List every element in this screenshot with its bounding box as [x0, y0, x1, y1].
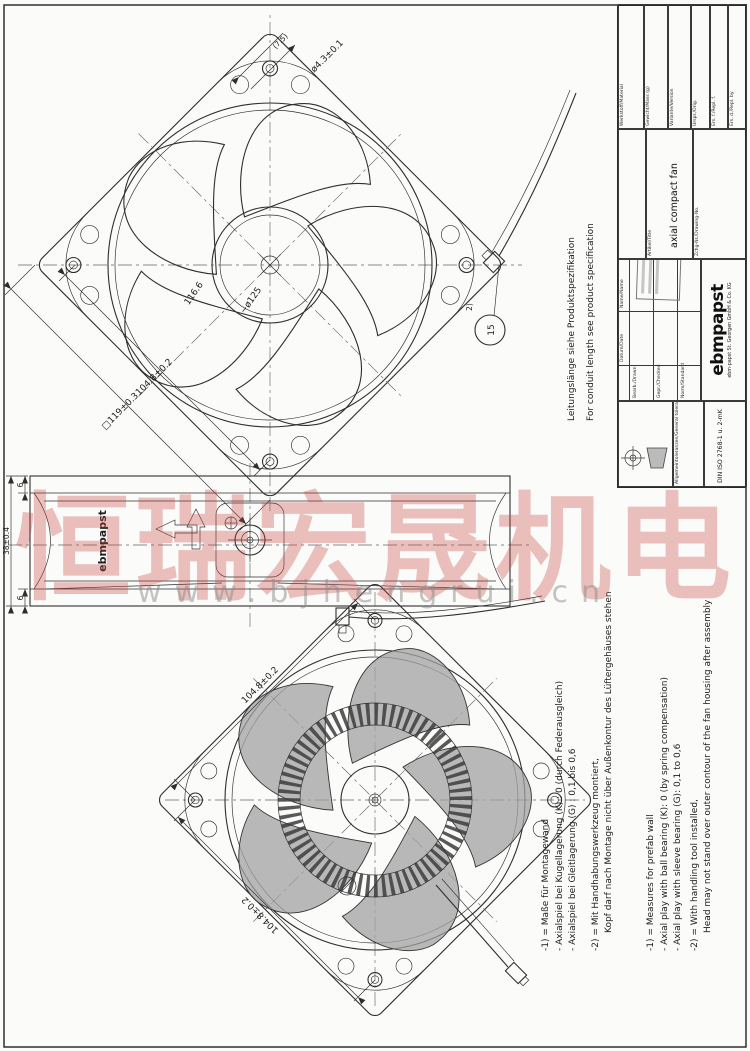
orig-label: Urspr./Orig.	[693, 100, 698, 126]
material-cell: Werkstoff/Material	[618, 4, 644, 129]
notes-english: -1) = Measures for prefab wall - Axial p…	[645, 600, 716, 951]
note-de-4: -2) = Mit Handhabungswerkzeug montiert,	[590, 591, 604, 951]
approval-stamp	[636, 259, 682, 301]
note-de-5: Kopf darf nach Montage nicht über Außenk…	[603, 591, 617, 951]
svg-text:□119±0.3: □119±0.3	[100, 391, 141, 432]
front-view-outlet: □119±0.3 104.8±0.2 (7.5) ø4.3±0.1 116.6	[5, 2, 576, 530]
tolerance-label: Allgemeintoleranzen/General tolerances	[675, 401, 680, 484]
note-en-1: -1) = Measures for prefab wall	[645, 600, 659, 951]
dim-hole-pitch: 104.8±0.2	[59, 265, 270, 476]
svg-text:6: 6	[16, 595, 25, 600]
svg-text:38±0.4: 38±0.4	[2, 527, 11, 555]
dim-flange-right: 6	[16, 476, 28, 493]
note-en-3: - Axial play with sleeve bearing (G): 0,…	[672, 600, 686, 951]
balloon-15: 15 2)	[465, 265, 505, 345]
mass-label: Gewicht/Mass (g)	[646, 86, 651, 126]
replaced-for-label: Ers. f./Repl. f.	[712, 96, 717, 126]
ebmpapst-logo: ebmpapst	[708, 260, 728, 400]
tolerance-label-cell: Allgemeintoleranzen/General tolerances	[673, 401, 704, 487]
note-de-3: - Axialspiel bei Gleitlagerung (G) : 0,1…	[567, 591, 581, 951]
dim-depth: 38±0.4	[2, 476, 28, 606]
article-title: axial compact fan	[669, 163, 680, 248]
note-en-4: -2) = With handling tool installed,	[689, 600, 703, 951]
lead-wire-side-view	[336, 596, 545, 633]
tolerance-standard: DIN ISO 2768-1 u. 2-mK	[717, 405, 725, 483]
article-label: Artikel/Title	[648, 230, 653, 256]
conduit-note-de: Leitungslänge siehe Produktspezifikation	[563, 223, 582, 421]
logo-cell: ebmpapst ebm-papst St. Georgen GmbH & Co…	[701, 259, 747, 401]
dim-flange-left: 6	[16, 589, 28, 606]
orig-cell: Urspr./Orig.	[691, 4, 710, 129]
approval-grid: Datum/Date Name/Name Bearb./Drawn Gepr./…	[618, 259, 701, 401]
replaced-for-cell: Ers. f./Repl. f.	[710, 4, 728, 129]
name-header: Name/Name	[620, 279, 625, 308]
replaced-by-cell: Ers. d./Repl. by	[728, 4, 747, 129]
date-header: Datum/Date	[620, 334, 625, 362]
replaced-by-label: Ers. d./Repl. by	[730, 91, 735, 126]
note-en-5: Head may not stand over outer contour of…	[702, 600, 716, 951]
standard-label: Norm/Standard	[681, 363, 686, 398]
company-name: ebm-papst St. Georgen GmbH & Co. KG	[728, 260, 733, 400]
material-label: Werkstoff/Material	[620, 84, 625, 126]
drawn-label: Bearb./Drawn	[633, 366, 638, 398]
projection-method-icon	[621, 446, 667, 470]
dim-ring: 116.6	[183, 280, 206, 307]
conduit-length-note: Leitungslänge siehe Produktspezifikation…	[563, 223, 601, 421]
note-de-2: - Axialspiel bei Kugellagerung (K) : 0 (…	[554, 591, 568, 951]
projection-symbol-cell	[618, 401, 673, 487]
side-view: ebmpapst 38±0.4 6	[2, 459, 545, 633]
fan-blades-shaded	[133, 579, 594, 1040]
spare-cell	[618, 129, 646, 259]
mass-cell: Gewicht/Mass (g)	[644, 4, 668, 129]
variant-label: Variante/Version	[670, 88, 675, 126]
conduit-note-en: For conduit length see product specifica…	[582, 223, 601, 421]
drawing-no-label: Zchg-Nr./Drawing-No.	[695, 207, 700, 256]
drawing-sheet-landscape: □119±0.3 104.8±0.2 (7.5) ø4.3±0.1 116.6	[0, 0, 750, 1051]
airflow-arrow	[156, 520, 197, 538]
shaft-screw-detail	[225, 517, 272, 562]
rotation-arrow	[187, 509, 205, 549]
drawing-page: □119±0.3 104.8±0.2 (7.5) ø4.3±0.1 116.6	[0, 0, 750, 1051]
title-block: Allgemeintoleranzen/General tolerances D…	[617, 5, 746, 488]
tolerance-value-cell: DIN ISO 2768-1 u. 2-mK	[704, 401, 747, 487]
note-en-2: - Axial play with ball bearing (K): 0 (b…	[659, 600, 673, 951]
article-cell: Artikel/Title axial compact fan	[646, 129, 693, 259]
drawing-no-cell: Zchg-Nr./Drawing-No.	[693, 129, 747, 259]
svg-text:2): 2)	[465, 303, 474, 311]
variant-cell: Variante/Version	[668, 4, 691, 129]
housing-brand-text: ebmpapst	[96, 510, 109, 572]
svg-text:15: 15	[487, 324, 497, 335]
notes-german: -1) = Maße für Montagewand - Axialspiel …	[540, 591, 617, 951]
lead-wire-outlet-view	[479, 90, 576, 273]
note-de-1: -1) = Maße für Montagewand	[540, 591, 554, 951]
svg-text:6: 6	[16, 482, 25, 487]
svg-text:ø4.3±0.1: ø4.3±0.1	[309, 38, 346, 75]
checked-label: Gepr./Checked	[657, 365, 662, 399]
